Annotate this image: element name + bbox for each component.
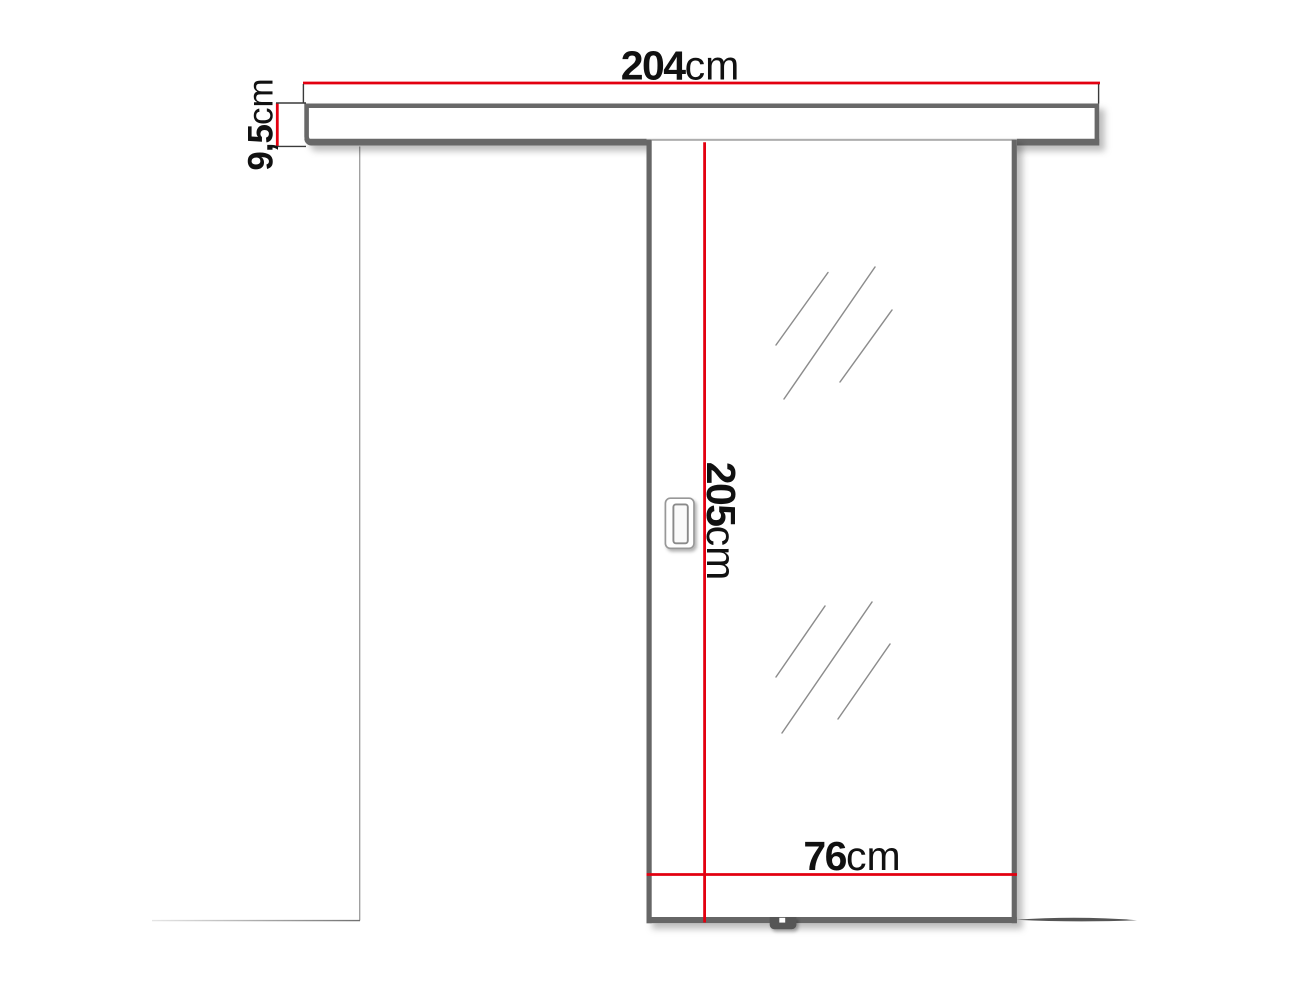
svg-text:204cm: 204cm xyxy=(621,42,740,88)
svg-text:9,5cm: 9,5cm xyxy=(242,78,281,170)
svg-text:76cm: 76cm xyxy=(803,833,900,879)
svg-text:205cm: 205cm xyxy=(698,462,744,581)
